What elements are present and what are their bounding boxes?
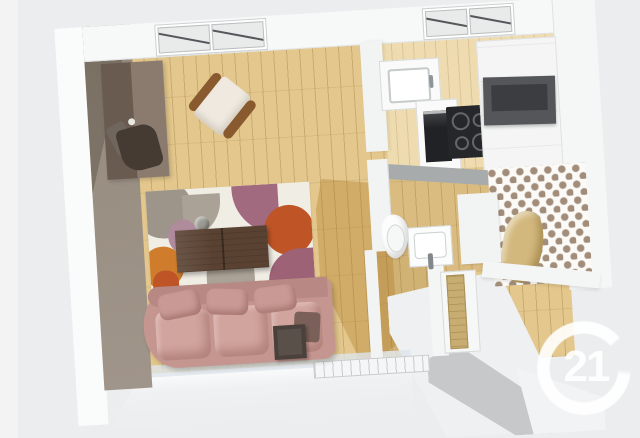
washbasin-faucet	[428, 253, 434, 269]
side-table	[273, 324, 307, 360]
window-pane	[469, 6, 513, 35]
watermark-text: 21	[550, 342, 622, 392]
sink-basin	[387, 67, 431, 104]
toilet-bowl	[386, 224, 406, 253]
burner	[451, 112, 470, 131]
window-pane	[157, 24, 210, 53]
burner	[454, 136, 469, 151]
washbasin-vanity	[407, 225, 453, 268]
sofa-pillow	[206, 288, 249, 315]
window-stay-arm	[157, 32, 210, 45]
refrigerator	[483, 76, 556, 126]
window-stay-arm	[211, 29, 264, 42]
coffee-table	[175, 225, 269, 273]
coffee-table-seam	[221, 228, 226, 270]
sofa-pillow	[253, 283, 298, 314]
side-table-top	[277, 328, 303, 355]
background-edge	[0, 0, 18, 438]
apartment-unit	[54, 0, 619, 438]
window-stay-arm	[469, 15, 513, 26]
floor-plan-render: 21	[0, 0, 640, 438]
refrigerator-top	[491, 84, 548, 111]
window-pane	[211, 21, 264, 50]
kitchen-window	[422, 3, 516, 41]
sink-faucet	[429, 75, 434, 88]
window-pane	[425, 9, 469, 38]
window-stay-arm	[425, 17, 469, 28]
shower-partition	[457, 192, 501, 264]
century21-watermark: 21	[536, 320, 632, 416]
living-room-window	[154, 18, 268, 57]
